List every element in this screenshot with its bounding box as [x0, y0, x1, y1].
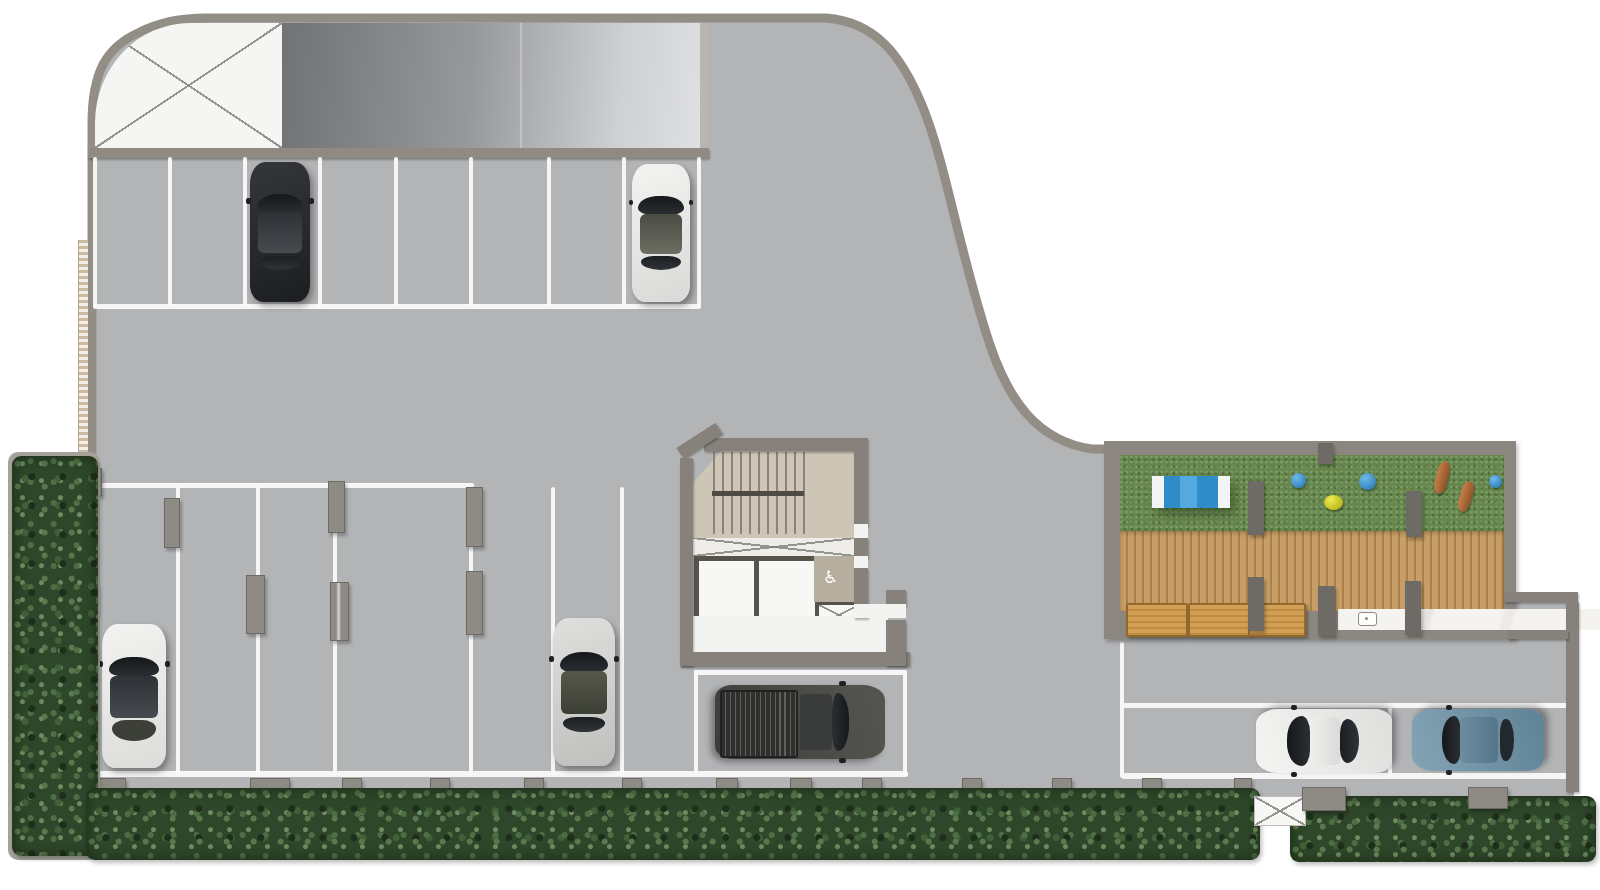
- elevator-lobby-strip: [692, 538, 856, 556]
- structural-column: [330, 582, 349, 641]
- lobby-floor: [692, 616, 888, 654]
- core-group: ♿: [678, 438, 910, 670]
- rear-window: [1340, 719, 1359, 763]
- wheelchair-icon: ♿: [823, 567, 838, 587]
- timber-deck: [1120, 531, 1504, 611]
- elevator-2: [754, 556, 820, 624]
- mirror: [1291, 772, 1296, 777]
- car-white-sedan: [632, 164, 690, 302]
- parking-row-edge-line: [1122, 703, 1568, 708]
- striped-canopy: [1152, 476, 1230, 508]
- accessible-wc: ♿: [814, 556, 856, 602]
- cabin-roof: [110, 676, 157, 718]
- mirror: [1291, 705, 1296, 710]
- parking-line: [697, 157, 701, 307]
- parking-line: [469, 157, 473, 307]
- core-wall-bottom: [680, 652, 910, 666]
- structural-column: [1468, 787, 1508, 809]
- parking-line: [243, 157, 247, 307]
- mirror: [629, 200, 634, 206]
- rear-window: [112, 720, 156, 740]
- cabin-roof: [640, 214, 683, 254]
- bench: [1188, 603, 1250, 637]
- site-plan: ♿: [0, 0, 1600, 890]
- car-black-sedan: [250, 162, 310, 302]
- rear-window: [260, 256, 301, 270]
- bay-line: [903, 670, 907, 776]
- core-wall-right: [854, 438, 868, 526]
- mirror: [614, 656, 619, 662]
- parking-line: [1120, 642, 1124, 778]
- deck-column: [1248, 577, 1264, 631]
- deck-column: [1248, 481, 1264, 535]
- bench: [1126, 603, 1188, 637]
- parking-line: [622, 157, 626, 307]
- core-wall-left: [680, 458, 693, 666]
- parking-line: [318, 157, 322, 307]
- car-white-coupe: [1256, 709, 1392, 773]
- core-wall-top: [704, 438, 856, 451]
- windshield: [257, 194, 304, 214]
- windshield: [109, 657, 159, 677]
- windshield: [638, 196, 683, 215]
- cabin-roof: [561, 671, 607, 714]
- rear-window: [1500, 719, 1513, 761]
- east-entry-wall: [1508, 630, 1568, 639]
- deck-wall-stub: [1318, 443, 1333, 464]
- ramp-seam: [520, 23, 522, 148]
- ramp-bottom-wall: [88, 148, 709, 158]
- left-trellis: [78, 240, 88, 468]
- sink-drain: [1365, 617, 1368, 620]
- entry-corner-wall: [886, 620, 906, 666]
- mirror: [549, 656, 554, 662]
- parking-row-edge-line: [93, 483, 474, 488]
- door-opening: [854, 556, 868, 568]
- car-silver-sedan: [553, 618, 615, 766]
- east-entry-wall: [1504, 592, 1578, 602]
- play-dome-yellow: [1324, 495, 1343, 510]
- windshield: [560, 652, 608, 673]
- deck-column: [1406, 491, 1422, 537]
- cabin-roof: [258, 212, 302, 253]
- parking-row-edge-line: [1122, 773, 1568, 779]
- cab-roof: [800, 694, 832, 750]
- mirror: [1446, 705, 1451, 710]
- cabin-roof: [1310, 717, 1340, 764]
- mirror: [246, 198, 251, 204]
- rear-window: [563, 717, 605, 732]
- entry-ramp: [282, 23, 702, 148]
- pedestrian-gate: [1254, 796, 1306, 826]
- deck-column: [1405, 581, 1421, 635]
- mirror: [839, 758, 846, 764]
- bay-line: [694, 670, 907, 675]
- sink-icon: [1358, 612, 1377, 626]
- mirror: [839, 681, 846, 687]
- car-gray-pickup: [715, 685, 885, 759]
- parking-line: [168, 157, 172, 307]
- stair-handrail: [712, 491, 804, 496]
- structural-column: [164, 498, 180, 548]
- hedge-bottom: [86, 788, 1260, 860]
- structural-column: [1302, 787, 1346, 811]
- mirror: [1446, 770, 1451, 775]
- elevator-1: [694, 556, 760, 624]
- parking-row-edge-line: [93, 304, 701, 309]
- ramp-side-wall: [700, 23, 709, 158]
- mirror: [165, 661, 170, 667]
- bay-line: [694, 670, 698, 776]
- cabin-roof: [1460, 717, 1498, 763]
- truck-bed: [720, 690, 799, 758]
- play-dome-blue: [1489, 475, 1502, 488]
- play-dome-blue: [1291, 473, 1306, 488]
- door-opening: [854, 524, 868, 538]
- parking-line: [547, 157, 551, 307]
- parking-row-edge-line: [93, 771, 908, 777]
- parking-line: [93, 157, 97, 307]
- counter-with-sink: [1338, 609, 1600, 630]
- parking-line: [394, 157, 398, 307]
- structural-column: [246, 575, 265, 634]
- parking-line: [620, 487, 624, 775]
- car-blue-sedan: [1412, 709, 1544, 771]
- play-dome-blue: [1359, 473, 1376, 490]
- deck-column: [1318, 586, 1335, 636]
- east-entry-walkway: [854, 604, 906, 618]
- structural-column: [466, 487, 483, 547]
- structural-column: [466, 571, 483, 635]
- rear-window: [641, 256, 680, 270]
- car-white-hatchback: [102, 624, 166, 768]
- windshield: [1287, 716, 1310, 766]
- mirror: [309, 198, 314, 204]
- structural-column: [328, 481, 345, 533]
- windshield: [1442, 716, 1460, 764]
- core-wall-right: [854, 538, 868, 558]
- windshield: [832, 693, 849, 751]
- amenity-deck: [1104, 441, 1516, 639]
